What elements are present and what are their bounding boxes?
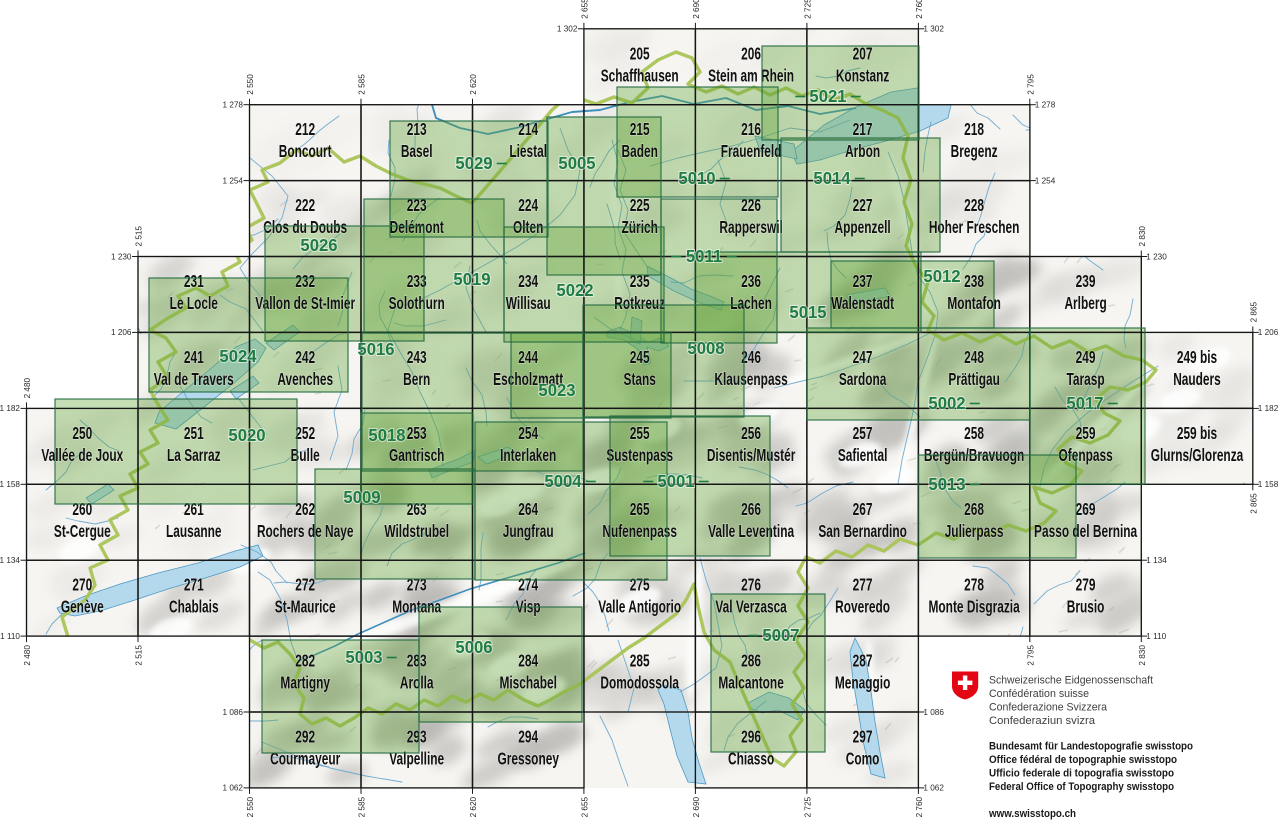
svg-text:Como: Como <box>846 749 880 769</box>
svg-text:Frauenfeld: Frauenfeld <box>721 142 782 162</box>
svg-text:Schweizerische Eidgenossenscha: Schweizerische Eidgenossenschaft <box>989 675 1154 687</box>
svg-text:Gantrisch: Gantrisch <box>389 446 445 466</box>
svg-text:Klausenpass: Klausenpass <box>714 370 787 390</box>
svg-text:2 655: 2 655 <box>581 796 590 817</box>
svg-text:253: 253 <box>407 424 427 444</box>
svg-text:5021: 5021 <box>809 86 847 107</box>
svg-text:Val Verzasca: Val Verzasca <box>715 597 787 617</box>
svg-text:239: 239 <box>1076 272 1096 292</box>
svg-text:261: 261 <box>184 500 204 520</box>
svg-text:272: 272 <box>295 575 315 595</box>
svg-text:Vallon de St-Imier: Vallon de St-Imier <box>255 294 355 314</box>
svg-text:Rapperswil: Rapperswil <box>719 218 782 238</box>
svg-text:5029: 5029 <box>455 153 492 174</box>
svg-text:2 795: 2 795 <box>1026 74 1035 95</box>
svg-text:Rochers de Naye: Rochers de Naye <box>257 522 353 542</box>
svg-text:2 690: 2 690 <box>692 0 701 19</box>
svg-text:Stans: Stans <box>624 370 656 390</box>
svg-text:Bergün/Bravuogn: Bergün/Bravuogn <box>924 446 1024 466</box>
svg-text:234: 234 <box>518 272 538 292</box>
svg-text:5001: 5001 <box>657 471 695 492</box>
svg-text:Valle Antigorio: Valle Antigorio <box>598 597 681 617</box>
svg-text:5004: 5004 <box>544 471 582 492</box>
svg-text:Ufficio federale di topografia: Ufficio federale di topografia swisstopo <box>989 768 1174 780</box>
svg-text:Nauders: Nauders <box>1173 370 1221 390</box>
svg-text:2 585: 2 585 <box>358 796 367 817</box>
svg-text:263: 263 <box>407 500 427 520</box>
svg-text:Bundesamt für Landestopografie: Bundesamt für Landestopografie swisstopo <box>989 741 1193 753</box>
svg-text:205: 205 <box>630 44 650 64</box>
svg-text:225: 225 <box>630 196 650 216</box>
svg-text:Olten: Olten <box>513 218 543 238</box>
svg-text:5022: 5022 <box>556 280 593 301</box>
svg-text:St-Cergue: St-Cergue <box>54 522 111 542</box>
svg-text:215: 215 <box>630 120 650 140</box>
svg-text:2 830: 2 830 <box>1138 645 1147 666</box>
svg-text:257: 257 <box>853 424 873 444</box>
svg-text:Brusio: Brusio <box>1067 597 1105 617</box>
svg-text:Safiental: Safiental <box>838 446 888 466</box>
svg-text:5023: 5023 <box>538 380 575 401</box>
svg-text:2 865: 2 865 <box>1249 493 1258 514</box>
svg-text:218: 218 <box>964 120 984 140</box>
svg-text:293: 293 <box>407 727 427 747</box>
svg-text:238: 238 <box>964 272 984 292</box>
svg-text:1 062: 1 062 <box>223 784 244 793</box>
svg-text:296: 296 <box>741 727 761 747</box>
svg-text:269: 269 <box>1076 500 1096 520</box>
svg-text:249: 249 <box>1076 348 1096 368</box>
svg-text:Tarasp: Tarasp <box>1067 370 1105 390</box>
svg-text:2 725: 2 725 <box>804 0 813 19</box>
svg-text:Basel: Basel <box>401 142 433 162</box>
svg-text:Val de Travers: Val de Travers <box>154 370 234 390</box>
svg-text:1 230: 1 230 <box>111 252 132 261</box>
svg-text:282: 282 <box>295 651 315 671</box>
svg-text:216: 216 <box>741 120 761 140</box>
svg-text:Jungfrau: Jungfrau <box>503 522 554 542</box>
svg-text:Gressoney: Gressoney <box>497 749 559 769</box>
svg-text:Nufenenpass: Nufenenpass <box>602 522 677 542</box>
svg-text:Solothurn: Solothurn <box>389 294 445 314</box>
svg-text:Malcantone: Malcantone <box>718 673 783 693</box>
svg-text:245: 245 <box>630 348 650 368</box>
svg-text:Passo del Bernina: Passo del Bernina <box>1034 522 1138 542</box>
svg-text:Konstanz: Konstanz <box>836 66 890 86</box>
svg-text:2 480: 2 480 <box>23 645 32 666</box>
svg-text:Interlaken: Interlaken <box>500 446 556 466</box>
svg-text:244: 244 <box>518 348 538 368</box>
svg-text:270: 270 <box>72 575 92 595</box>
svg-text:1 134: 1 134 <box>0 556 20 565</box>
svg-text:259: 259 <box>1076 424 1096 444</box>
svg-text:1 254: 1 254 <box>223 176 244 185</box>
svg-text:Vallée de Joux: Vallée de Joux <box>41 446 124 466</box>
svg-text:1 254: 1 254 <box>1035 176 1056 185</box>
svg-text:Schaffhausen: Schaffhausen <box>601 66 679 86</box>
svg-text:5006: 5006 <box>455 637 492 658</box>
svg-text:Lausanne: Lausanne <box>166 522 222 542</box>
svg-text:255: 255 <box>630 424 650 444</box>
svg-text:St-Maurice: St-Maurice <box>275 597 336 617</box>
svg-text:5012: 5012 <box>923 266 960 287</box>
svg-text:La Sarraz: La Sarraz <box>167 446 221 466</box>
svg-text:284: 284 <box>518 651 538 671</box>
svg-text:5008: 5008 <box>687 338 725 359</box>
svg-text:212: 212 <box>295 120 315 140</box>
svg-text:1 230: 1 230 <box>1146 252 1167 261</box>
svg-text:276: 276 <box>741 575 761 595</box>
svg-text:222: 222 <box>295 196 315 216</box>
svg-text:243: 243 <box>407 348 427 368</box>
svg-text:Rotkreuz: Rotkreuz <box>614 294 665 314</box>
svg-text:2 480: 2 480 <box>23 377 32 398</box>
svg-text:1 158: 1 158 <box>1258 480 1279 489</box>
svg-text:Bulle: Bulle <box>291 446 320 466</box>
svg-text:5003: 5003 <box>345 647 382 668</box>
svg-text:1 086: 1 086 <box>923 708 944 717</box>
svg-text:Boncourt: Boncourt <box>279 142 332 162</box>
svg-text:Prättigau: Prättigau <box>948 370 1000 390</box>
svg-text:5010: 5010 <box>678 168 715 189</box>
svg-text:5009: 5009 <box>343 487 380 508</box>
svg-text:214: 214 <box>518 120 538 140</box>
svg-text:Mischabel: Mischabel <box>499 673 557 693</box>
svg-text:Le Locle: Le Locle <box>170 294 218 314</box>
svg-text:259 bis: 259 bis <box>1177 424 1217 444</box>
svg-text:250: 250 <box>72 424 92 444</box>
svg-text:242: 242 <box>295 348 315 368</box>
svg-text:283: 283 <box>407 651 427 671</box>
svg-text:274: 274 <box>518 575 538 595</box>
svg-text:Bern: Bern <box>403 370 430 390</box>
svg-text:5017: 5017 <box>1066 393 1103 414</box>
svg-text:Disentis/Mustér: Disentis/Mustér <box>707 446 796 466</box>
svg-text:275: 275 <box>630 575 650 595</box>
svg-text:254: 254 <box>518 424 538 444</box>
svg-text:213: 213 <box>407 120 427 140</box>
svg-text:5011: 5011 <box>686 246 723 267</box>
svg-text:Monte Disgrazia: Monte Disgrazia <box>929 597 1021 617</box>
svg-text:285: 285 <box>630 651 650 671</box>
svg-text:Baden: Baden <box>622 142 658 162</box>
svg-text:2 620: 2 620 <box>469 796 478 817</box>
svg-text:Liestal: Liestal <box>509 142 547 162</box>
svg-text:287: 287 <box>853 651 873 671</box>
svg-text:241: 241 <box>184 348 204 368</box>
svg-text:2 725: 2 725 <box>804 796 813 817</box>
svg-text:5002: 5002 <box>928 393 965 414</box>
svg-text:Willisau: Willisau <box>506 294 551 314</box>
svg-text:231: 231 <box>184 272 204 292</box>
svg-text:278: 278 <box>964 575 984 595</box>
svg-text:1 086: 1 086 <box>223 708 244 717</box>
svg-text:Walenstadt: Walenstadt <box>831 294 894 314</box>
svg-text:247: 247 <box>853 348 873 368</box>
svg-text:1 158: 1 158 <box>0 480 20 489</box>
svg-text:297: 297 <box>853 727 873 747</box>
svg-text:5018: 5018 <box>368 425 406 446</box>
svg-text:Arolla: Arolla <box>400 673 434 693</box>
svg-text:271: 271 <box>184 575 204 595</box>
svg-text:5013: 5013 <box>928 474 965 495</box>
svg-text:Valle Leventina: Valle Leventina <box>708 522 794 542</box>
svg-text:5007: 5007 <box>762 625 799 646</box>
svg-text:232: 232 <box>295 272 315 292</box>
svg-text:Chablais: Chablais <box>169 597 219 617</box>
svg-text:5019: 5019 <box>453 269 490 290</box>
svg-text:1 278: 1 278 <box>223 101 244 110</box>
svg-text:277: 277 <box>853 575 873 595</box>
svg-text:1 182: 1 182 <box>1258 404 1279 413</box>
svg-text:237: 237 <box>853 272 873 292</box>
svg-text:249 bis: 249 bis <box>1177 348 1217 368</box>
svg-text:2 620: 2 620 <box>469 74 478 95</box>
svg-text:2 830: 2 830 <box>1138 226 1147 247</box>
svg-text:Bregenz: Bregenz <box>951 142 998 162</box>
svg-text:256: 256 <box>741 424 761 444</box>
svg-text:252: 252 <box>295 424 315 444</box>
svg-text:294: 294 <box>518 727 538 747</box>
svg-text:1 302: 1 302 <box>923 25 944 34</box>
svg-text:262: 262 <box>295 500 315 520</box>
svg-text:Julierpass: Julierpass <box>945 522 1004 542</box>
svg-text:Sustenpass: Sustenpass <box>606 446 673 466</box>
svg-text:www.swisstopo.ch: www.swisstopo.ch <box>988 808 1076 820</box>
svg-text:Arlberg: Arlberg <box>1064 294 1106 314</box>
svg-text:2 865: 2 865 <box>1249 301 1258 322</box>
svg-text:1 302: 1 302 <box>557 25 578 34</box>
svg-text:Office fédéral de topographie: Office fédéral de topographie swisstopo <box>989 754 1177 766</box>
svg-text:5024: 5024 <box>219 346 257 367</box>
svg-text:217: 217 <box>853 120 873 140</box>
svg-text:2 760: 2 760 <box>915 796 924 817</box>
svg-text:Glurns/Glorenza: Glurns/Glorenza <box>1151 446 1244 466</box>
svg-text:2 690: 2 690 <box>692 796 701 817</box>
svg-text:279: 279 <box>1076 575 1096 595</box>
svg-text:251: 251 <box>184 424 204 444</box>
svg-text:Genève: Genève <box>61 597 104 617</box>
svg-text:206: 206 <box>741 44 761 64</box>
svg-text:265: 265 <box>630 500 650 520</box>
svg-text:Montafon: Montafon <box>947 294 1001 314</box>
svg-text:Stein am Rhein: Stein am Rhein <box>708 66 794 86</box>
svg-text:2 515: 2 515 <box>135 226 144 247</box>
svg-text:1 062: 1 062 <box>923 784 944 793</box>
svg-text:1 110: 1 110 <box>1146 632 1166 641</box>
svg-text:Courmayeur: Courmayeur <box>270 749 340 769</box>
svg-text:Valpelline: Valpelline <box>389 749 444 769</box>
svg-text:Martigny: Martigny <box>280 673 330 693</box>
svg-text:Delémont: Delémont <box>390 218 444 238</box>
svg-text:1 206: 1 206 <box>111 328 132 337</box>
svg-text:207: 207 <box>853 44 873 64</box>
svg-text:5020: 5020 <box>228 425 265 446</box>
svg-text:292: 292 <box>295 727 315 747</box>
svg-text:224: 224 <box>518 196 538 216</box>
svg-text:Lachen: Lachen <box>730 294 772 314</box>
svg-text:268: 268 <box>964 500 984 520</box>
svg-text:Confederazione Svizzera: Confederazione Svizzera <box>989 702 1108 714</box>
svg-text:1 134: 1 134 <box>1146 556 1167 565</box>
svg-text:2 550: 2 550 <box>246 796 255 817</box>
svg-text:1 278: 1 278 <box>1035 101 1056 110</box>
svg-text:Wildstrubel: Wildstrubel <box>384 522 449 542</box>
svg-text:Domodossola: Domodossola <box>600 673 679 693</box>
svg-text:Roveredo: Roveredo <box>835 597 890 617</box>
svg-text:Avenches: Avenches <box>277 370 333 390</box>
svg-text:Hoher Freschen: Hoher Freschen <box>929 218 1020 238</box>
svg-text:266: 266 <box>741 500 761 520</box>
svg-text:Ofenpass: Ofenpass <box>1059 446 1113 466</box>
svg-text:248: 248 <box>964 348 984 368</box>
svg-text:1 110: 1 110 <box>0 632 20 641</box>
svg-text:260: 260 <box>72 500 92 520</box>
svg-text:Zürich: Zürich <box>622 218 658 238</box>
svg-text:286: 286 <box>741 651 761 671</box>
svg-text:2 515: 2 515 <box>135 645 144 666</box>
svg-text:258: 258 <box>964 424 984 444</box>
svg-text:1 182: 1 182 <box>0 404 20 413</box>
svg-text:5014: 5014 <box>813 168 851 189</box>
svg-text:2 585: 2 585 <box>358 74 367 95</box>
svg-text:Menaggio: Menaggio <box>835 673 890 693</box>
svg-text:San Bernardino: San Bernardino <box>818 522 907 542</box>
svg-text:Confederaziun svizra: Confederaziun svizra <box>989 715 1096 727</box>
svg-text:2 795: 2 795 <box>1026 645 1035 666</box>
svg-text:236: 236 <box>741 272 761 292</box>
svg-text:Appenzell: Appenzell <box>835 218 891 238</box>
svg-text:228: 228 <box>964 196 984 216</box>
svg-text:264: 264 <box>518 500 538 520</box>
svg-text:5016: 5016 <box>357 339 394 360</box>
svg-text:2 550: 2 550 <box>246 74 255 95</box>
svg-text:227: 227 <box>853 196 873 216</box>
svg-text:1 206: 1 206 <box>1258 328 1279 337</box>
svg-text:5026: 5026 <box>300 235 337 256</box>
svg-text:Arbon: Arbon <box>845 142 880 162</box>
svg-text:2 760: 2 760 <box>915 0 924 19</box>
svg-text:5015: 5015 <box>789 302 827 323</box>
svg-text:Federal Office of Topography s: Federal Office of Topography swisstopo <box>989 781 1174 793</box>
svg-text:Confédération suisse: Confédération suisse <box>989 688 1089 700</box>
svg-text:Sardona: Sardona <box>839 370 887 390</box>
svg-text:2 655: 2 655 <box>581 0 590 19</box>
svg-text:5005: 5005 <box>558 153 596 174</box>
svg-text:267: 267 <box>853 500 873 520</box>
